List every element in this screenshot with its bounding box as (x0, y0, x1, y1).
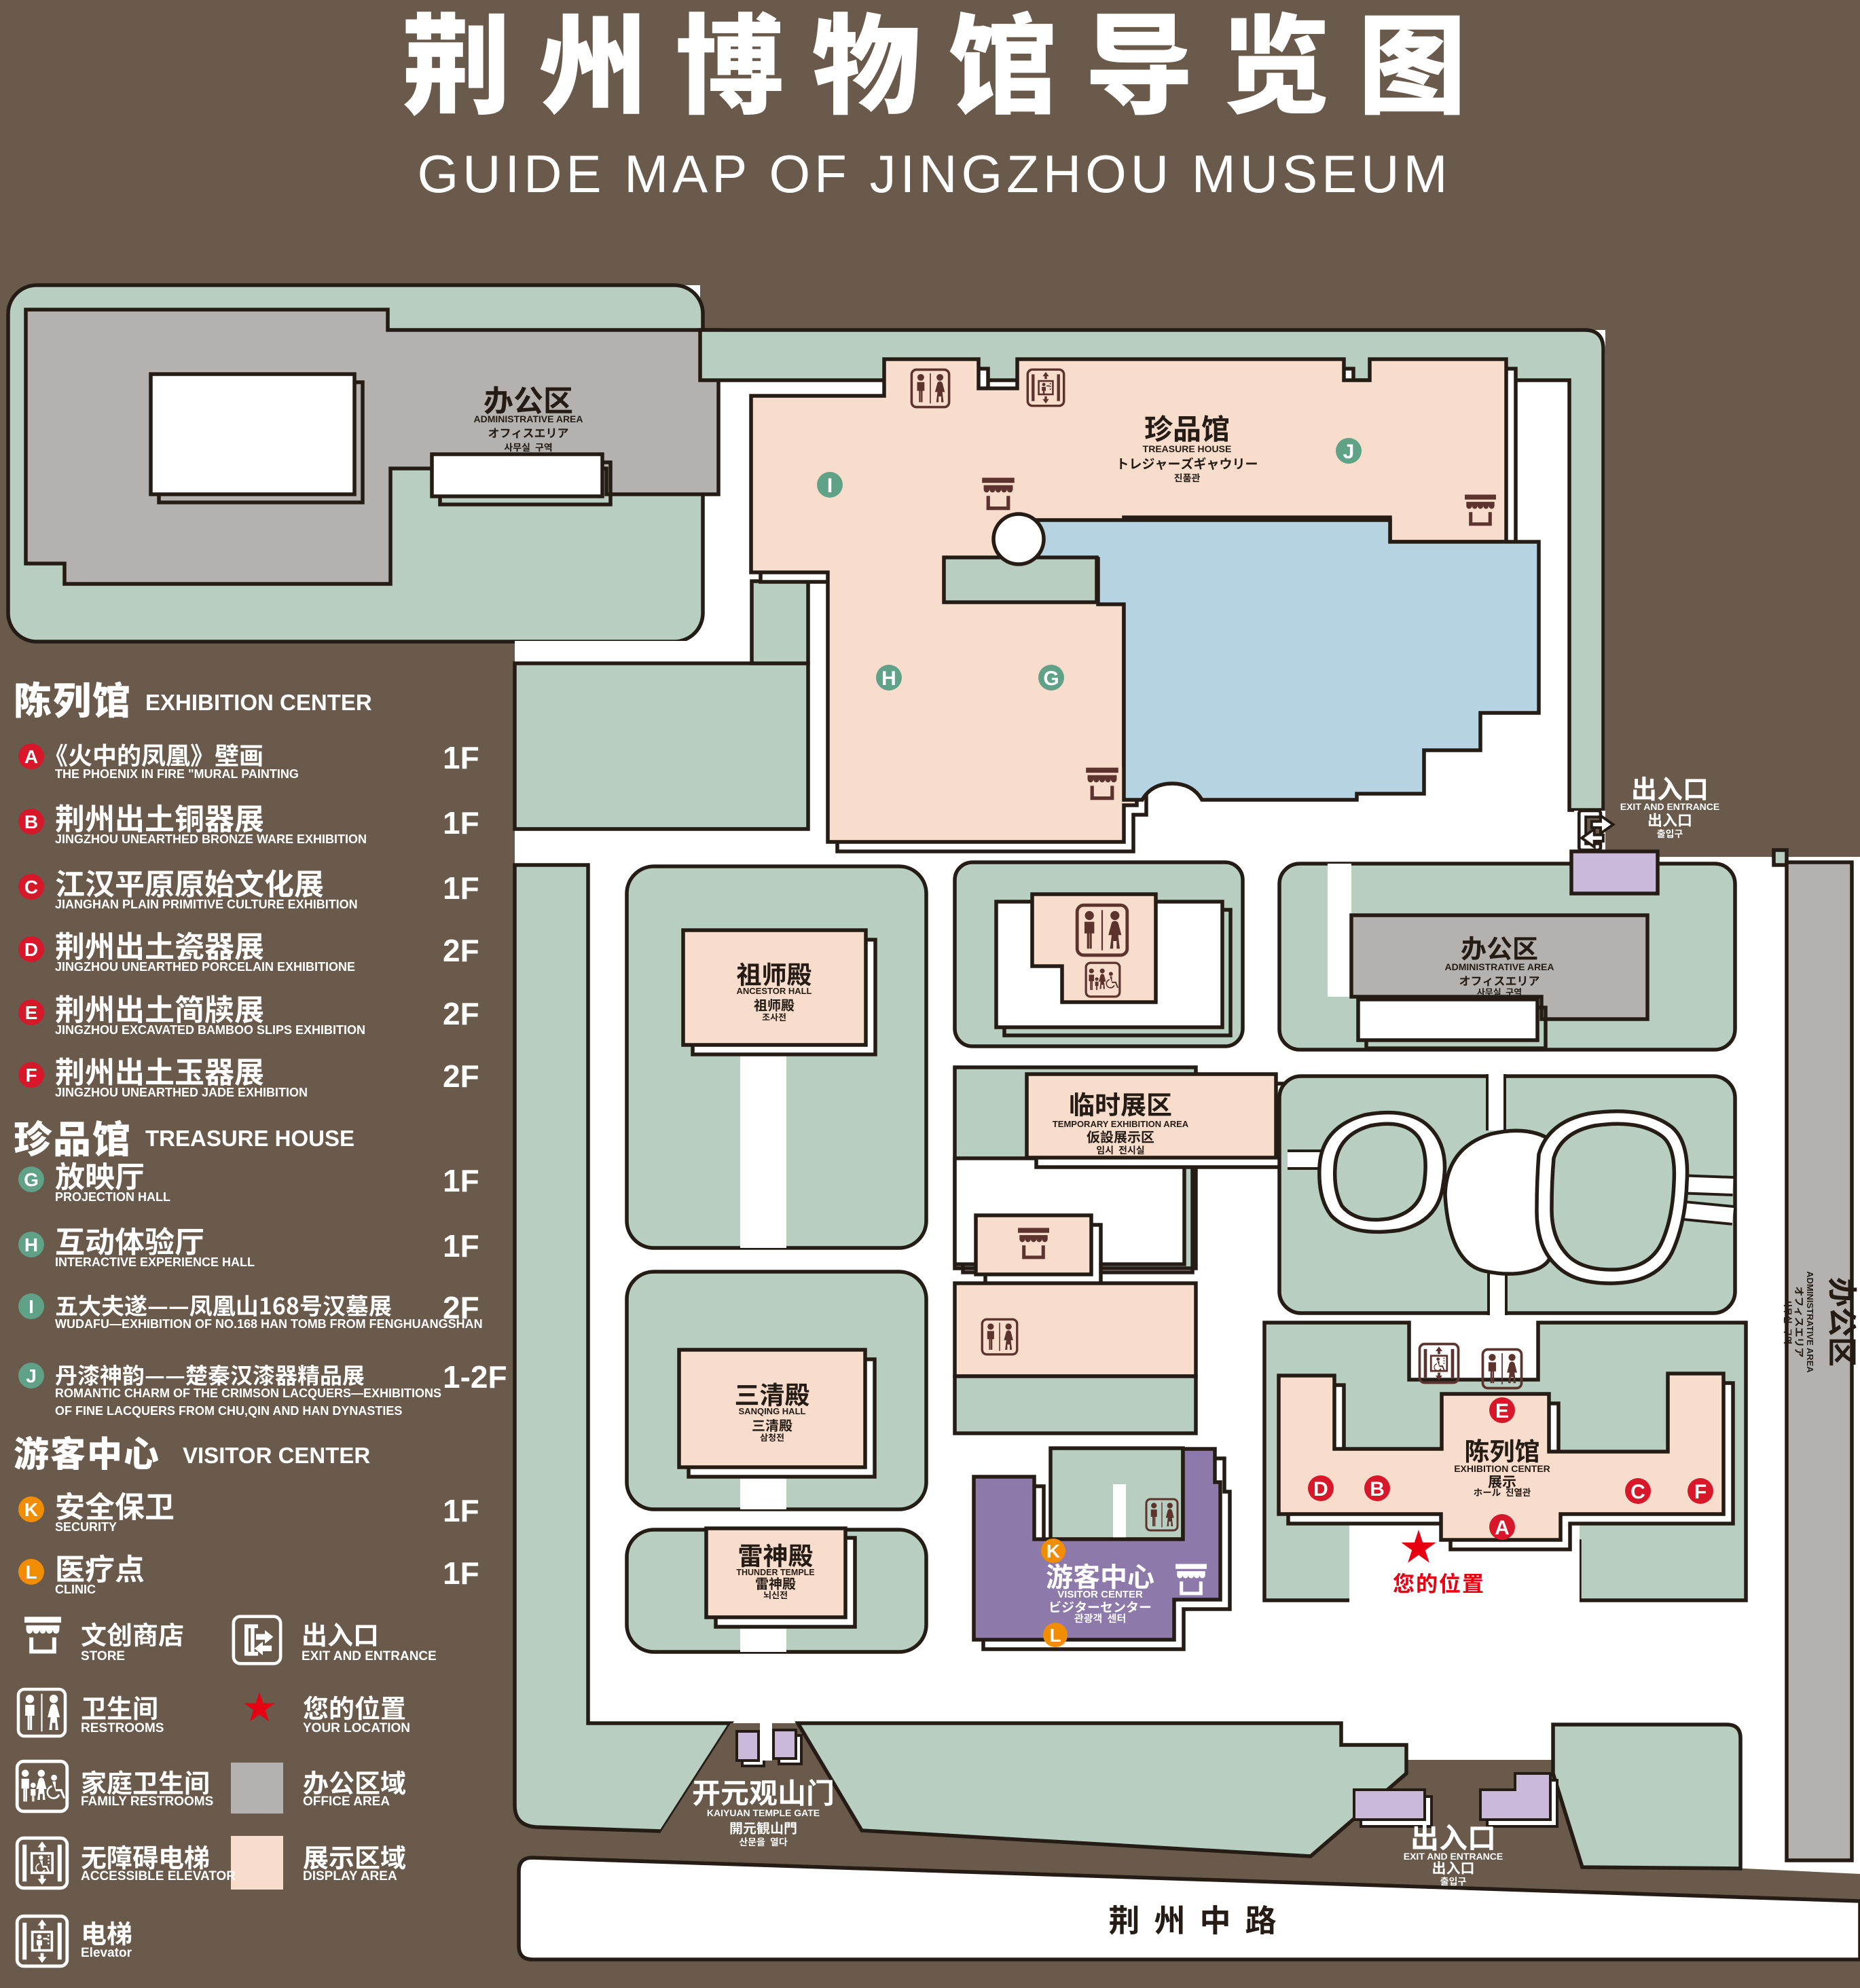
svg-text:RESTROOMS: RESTROOMS (81, 1721, 164, 1735)
svg-text:G: G (1043, 667, 1059, 690)
svg-text:I: I (827, 475, 833, 497)
svg-text:YOUR LOCATION: YOUR LOCATION (303, 1721, 410, 1735)
svg-text:F: F (1694, 1481, 1707, 1503)
svg-text:DISPLAY AREA: DISPLAY AREA (303, 1869, 397, 1883)
svg-text:ADMINISTRATIVE AREA: ADMINISTRATIVE AREA (474, 413, 583, 424)
svg-text:ACCESSIBLE ELEVATOR: ACCESSIBLE ELEVATOR (81, 1869, 236, 1883)
svg-text:JINGZHOU UNEARTHED PORCELAIN E: JINGZHOU UNEARTHED PORCELAIN EXHIBITIONE (55, 960, 355, 974)
svg-text:TEMPORARY EXHIBITION AREA: TEMPORARY EXHIBITION AREA (1053, 1119, 1189, 1129)
svg-text:J: J (26, 1365, 37, 1386)
svg-text:1F: 1F (443, 1556, 479, 1591)
svg-text:1F: 1F (443, 1163, 479, 1198)
svg-text:CLINIC: CLINIC (55, 1583, 96, 1596)
svg-text:INTERACTIVE EXPERIENCE HALL: INTERACTIVE EXPERIENCE HALL (55, 1255, 255, 1269)
svg-text:FAMILY RESTROOMS: FAMILY RESTROOMS (81, 1794, 213, 1809)
svg-text:G: G (24, 1169, 39, 1190)
svg-text:E: E (1495, 1400, 1509, 1422)
svg-text:VISITOR CENTER: VISITOR CENTER (183, 1443, 370, 1468)
svg-text:C: C (1630, 1481, 1645, 1503)
svg-text:VISITOR CENTER: VISITOR CENTER (1057, 1589, 1143, 1600)
svg-text:J: J (1343, 441, 1355, 463)
svg-text:SECURITY: SECURITY (55, 1520, 117, 1534)
svg-text:EXIT AND ENTRANCE: EXIT AND ENTRANCE (1620, 801, 1720, 812)
svg-text:JINGZHOU EXCAVATED BAMBOO SLIP: JINGZHOU EXCAVATED BAMBOO SLIPS EXHIBITI… (55, 1023, 365, 1037)
svg-text:JIANGHAN PLAIN PRIMITIVE CULTU: JIANGHAN PLAIN PRIMITIVE CULTURE EXHIBIT… (55, 898, 358, 911)
svg-text:WUDAFU—EXHIBITION OF NO.168 HA: WUDAFU—EXHIBITION OF NO.168 HAN TOMB FRO… (55, 1317, 483, 1331)
svg-text:1-2F: 1-2F (443, 1359, 507, 1395)
svg-text:K: K (24, 1499, 38, 1520)
svg-text:L: L (1049, 1625, 1061, 1646)
svg-text:K: K (1046, 1541, 1060, 1562)
svg-text:EXIT AND ENTRANCE: EXIT AND ENTRANCE (1404, 1851, 1503, 1862)
svg-text:EXIT AND ENTRANCE: EXIT AND ENTRANCE (302, 1649, 437, 1663)
svg-text:OF FINE LACQUERS FROM CHU,QIN: OF FINE LACQUERS FROM CHU,QIN AND HAN DY… (55, 1404, 402, 1418)
svg-text:JINGZHOU UNEARTHED BRONZE WARE: JINGZHOU UNEARTHED BRONZE WARE EXHIBITIO… (55, 832, 367, 846)
svg-text:1F: 1F (443, 1228, 479, 1264)
svg-text:C: C (24, 877, 38, 898)
svg-text:EXHIBITION CENTER: EXHIBITION CENTER (1454, 1463, 1550, 1474)
svg-text:ADMINISTRATIVE AREA: ADMINISTRATIVE AREA (1445, 961, 1554, 972)
svg-text:2F: 2F (443, 933, 479, 968)
svg-text:THUNDER TEMPLE: THUNDER TEMPLE (736, 1568, 814, 1577)
svg-text:A: A (1495, 1517, 1510, 1539)
svg-text:TREASURE HOUSE: TREASURE HOUSE (145, 1126, 354, 1151)
svg-text:ROMANTIC CHARM OF THE CRIMSON: ROMANTIC CHARM OF THE CRIMSON LACQUERS—E… (55, 1386, 441, 1400)
svg-text:D: D (24, 939, 38, 960)
svg-text:JINGZHOU UNEARTHED JADE EXHIBI: JINGZHOU UNEARTHED JADE EXHIBITION (55, 1086, 308, 1099)
svg-text:D: D (1313, 1478, 1328, 1501)
svg-text:2F: 2F (443, 1059, 479, 1094)
svg-text:PROJECTION HALL: PROJECTION HALL (55, 1190, 170, 1204)
svg-text:H: H (24, 1234, 38, 1255)
svg-text:EXHIBITION CENTER: EXHIBITION CENTER (145, 690, 372, 715)
svg-text:2F: 2F (443, 996, 479, 1031)
svg-text:F: F (25, 1065, 37, 1086)
svg-text:A: A (24, 746, 38, 767)
svg-text:SANQING HALL: SANQING HALL (739, 1406, 806, 1416)
svg-text:1F: 1F (443, 740, 479, 775)
svg-text:1F: 1F (443, 805, 479, 841)
svg-text:E: E (25, 1002, 38, 1023)
svg-text:H: H (881, 667, 896, 690)
svg-text:1F: 1F (443, 870, 479, 906)
svg-text:GUIDE MAP OF JINGZHOU MUSEUM: GUIDE MAP OF JINGZHOU MUSEUM (418, 144, 1452, 204)
svg-text:I: I (29, 1296, 34, 1317)
svg-text:B: B (24, 811, 38, 832)
svg-text:Elevator: Elevator (81, 1946, 132, 1960)
svg-text:ANCESTOR HALL: ANCESTOR HALL (737, 986, 812, 996)
svg-text:1F: 1F (443, 1493, 479, 1528)
svg-text:THE PHOENIX IN FIRE "MURAL PAI: THE PHOENIX IN FIRE "MURAL PAINTING (55, 767, 299, 781)
svg-text:TREASURE HOUSE: TREASURE HOUSE (1143, 443, 1232, 454)
svg-text:B: B (1370, 1478, 1385, 1501)
svg-text:ADMINISTRATIVE AREA: ADMINISTRATIVE AREA (1805, 1271, 1815, 1373)
svg-text:STORE: STORE (81, 1649, 125, 1663)
svg-text:OFFICE AREA: OFFICE AREA (303, 1794, 390, 1809)
svg-text:L: L (25, 1562, 37, 1583)
svg-text:KAIYUAN TEMPLE GATE: KAIYUAN TEMPLE GATE (707, 1807, 820, 1818)
